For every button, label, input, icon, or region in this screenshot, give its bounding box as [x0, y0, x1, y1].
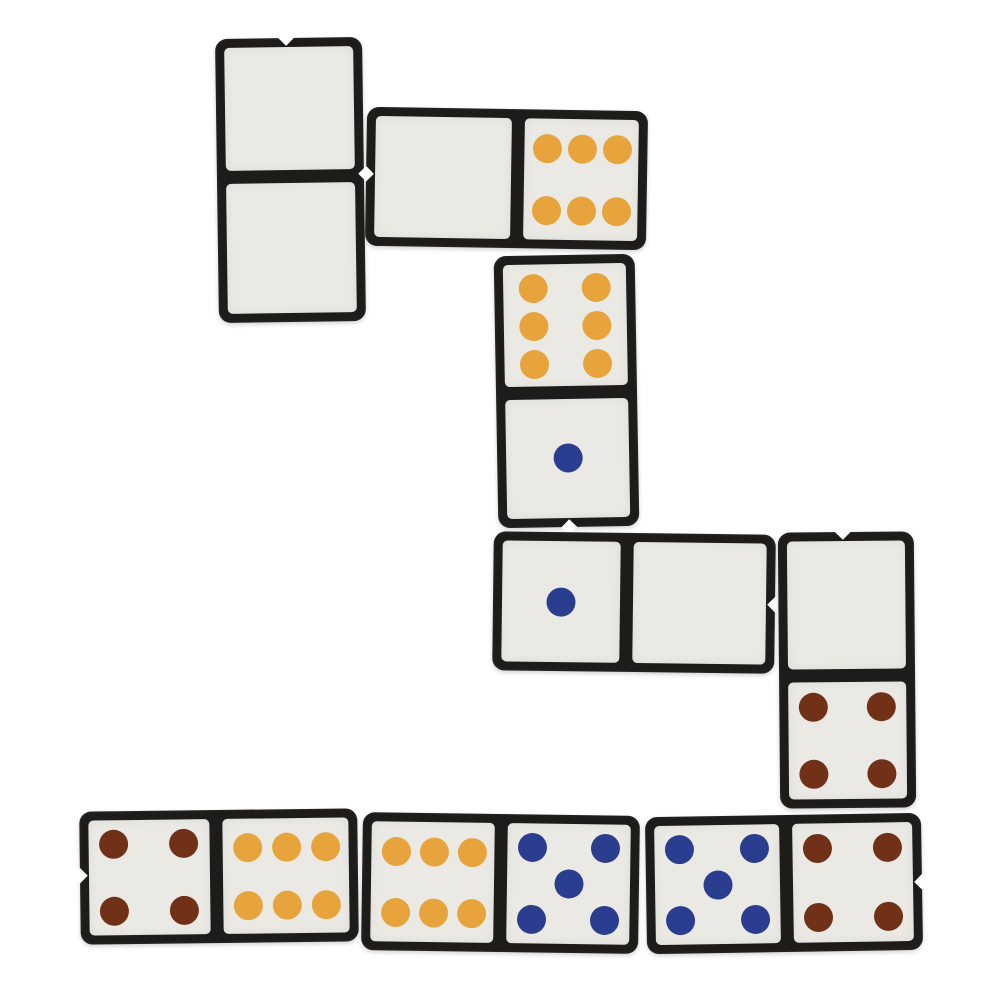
domino-five-four-left-half — [654, 824, 781, 945]
pip-orange — [583, 349, 613, 379]
pip-orange — [532, 134, 561, 163]
pip-orange — [419, 899, 448, 928]
domino-four-six[interactable] — [79, 808, 359, 944]
domino-blank-six-right-half — [523, 118, 639, 241]
pip-brown — [803, 834, 832, 863]
domino-double-blank[interactable] — [215, 37, 366, 323]
edge-notch — [914, 874, 930, 890]
pip-orange — [582, 273, 612, 303]
pip-orange — [312, 890, 341, 919]
pip-orange — [519, 350, 549, 380]
pip-blue — [547, 587, 576, 616]
pip-orange — [380, 898, 409, 927]
pip-brown — [873, 833, 902, 862]
pip-blue — [553, 444, 583, 474]
pip-orange — [273, 891, 302, 920]
pip-blue — [741, 905, 770, 934]
domino-double-blank-top-half — [224, 46, 355, 170]
domino-six-one-top-half — [503, 263, 628, 387]
domino-blank-six-left-half — [374, 116, 512, 239]
pip-blue — [665, 835, 694, 864]
pip-orange — [568, 135, 597, 164]
domino-four-six-right-half — [222, 817, 350, 934]
pip-blue — [703, 870, 732, 899]
pip-brown — [867, 692, 896, 721]
pip-brown — [874, 902, 903, 931]
pip-orange — [457, 899, 486, 928]
pip-orange — [531, 196, 560, 225]
pip-blue — [590, 906, 619, 935]
pip-blue — [591, 834, 620, 863]
domino-one-blank-right-half — [633, 542, 767, 665]
edge-notch — [278, 30, 294, 46]
pip-brown — [99, 830, 128, 859]
pip-brown — [170, 896, 199, 925]
pip-blue — [516, 905, 545, 934]
pip-orange — [519, 312, 549, 342]
domino-six-five[interactable] — [361, 812, 640, 954]
pip-brown — [169, 829, 198, 858]
edge-notch — [835, 524, 851, 540]
pip-orange — [381, 837, 410, 866]
pip-orange — [419, 837, 448, 866]
domino-double-blank-bottom-half — [226, 182, 357, 314]
pip-orange — [603, 135, 632, 164]
pip-orange — [567, 196, 596, 225]
pip-orange — [602, 197, 631, 226]
edge-notch — [72, 868, 88, 884]
pip-blue — [666, 906, 695, 935]
pip-brown — [804, 903, 833, 932]
pip-brown — [868, 759, 897, 788]
domino-six-one-bottom-half — [505, 398, 630, 519]
pip-blue — [517, 833, 546, 862]
domino-blank-six[interactable] — [365, 107, 648, 250]
pip-orange — [234, 891, 263, 920]
domino-six-five-left-half — [370, 821, 495, 943]
pip-orange — [458, 838, 487, 867]
pip-orange — [518, 274, 548, 304]
domino-five-four-right-half — [792, 822, 914, 943]
pip-brown — [798, 692, 827, 721]
domino-four-six-left-half — [88, 819, 210, 935]
domino-board — [0, 0, 1000, 1000]
pip-orange — [311, 832, 340, 861]
domino-five-four[interactable] — [645, 813, 923, 954]
pip-brown — [799, 760, 828, 789]
pip-orange — [272, 832, 301, 861]
pip-brown — [100, 896, 129, 925]
domino-blank-four[interactable] — [778, 531, 916, 808]
pip-blue — [554, 869, 583, 898]
pip-orange — [583, 311, 613, 341]
domino-blank-four-top-half — [787, 540, 906, 669]
domino-blank-four-bottom-half — [788, 682, 907, 800]
domino-one-blank[interactable] — [492, 531, 776, 673]
pip-orange — [233, 833, 262, 862]
domino-six-five-right-half — [506, 823, 631, 945]
domino-one-blank-left-half — [501, 540, 621, 662]
pip-blue — [740, 834, 769, 863]
domino-six-one[interactable] — [494, 254, 640, 528]
